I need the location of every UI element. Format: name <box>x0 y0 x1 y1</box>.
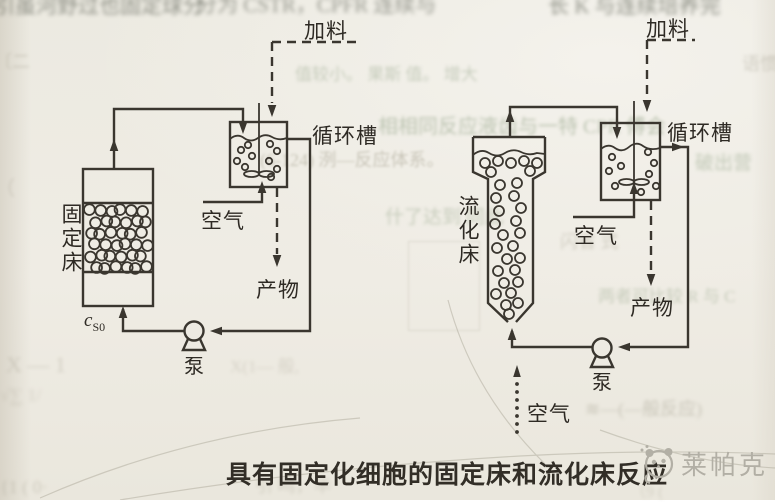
inlet-concentration-label: cS0 <box>84 310 105 335</box>
bed-label-fixed: 固定床 <box>56 203 86 275</box>
product-label-right: 产物 <box>630 292 674 322</box>
panda-logo <box>640 444 680 484</box>
circulation-tank-left <box>230 103 287 187</box>
air-label-right-tank: 空气 <box>574 220 618 250</box>
feed-label-left: 加料 <box>304 15 348 45</box>
feed-label-right: 加料 <box>646 13 690 43</box>
tank-label-right: 循环槽 <box>667 117 733 147</box>
cs0-sub: S0 <box>92 320 105 334</box>
fluidized-bed-vessel <box>473 137 545 322</box>
book-page: 引虽河野过也固定球分 分为 CSTR，CPFR 连续与 长 K 与连续培养完 值… <box>0 0 775 500</box>
figure-caption: 具有固定化细胞的固定床和流化床反应 <box>226 455 668 491</box>
watermark-text: 莱帕克 <box>681 445 768 482</box>
pump-label-left: 泵 <box>184 350 205 379</box>
pump-right <box>591 339 613 368</box>
packing-circles <box>84 204 153 274</box>
tank-label-left: 循环槽 <box>312 120 378 150</box>
fixed-bed-vessel <box>83 169 153 306</box>
bed-label-fluidized: 流化床 <box>453 195 483 267</box>
piping-left <box>110 42 361 335</box>
pump-label-right: 泵 <box>592 366 613 395</box>
sparger-air-dots <box>515 382 519 434</box>
tank-bubbles <box>234 141 280 180</box>
product-label-left: 产物 <box>256 274 300 304</box>
air-label-right-bottom: 空气 <box>527 398 571 428</box>
circulation-tank-right <box>601 101 660 200</box>
pump-left <box>183 322 205 351</box>
air-label-left: 空气 <box>201 205 245 235</box>
reactor-diagram <box>0 0 775 500</box>
